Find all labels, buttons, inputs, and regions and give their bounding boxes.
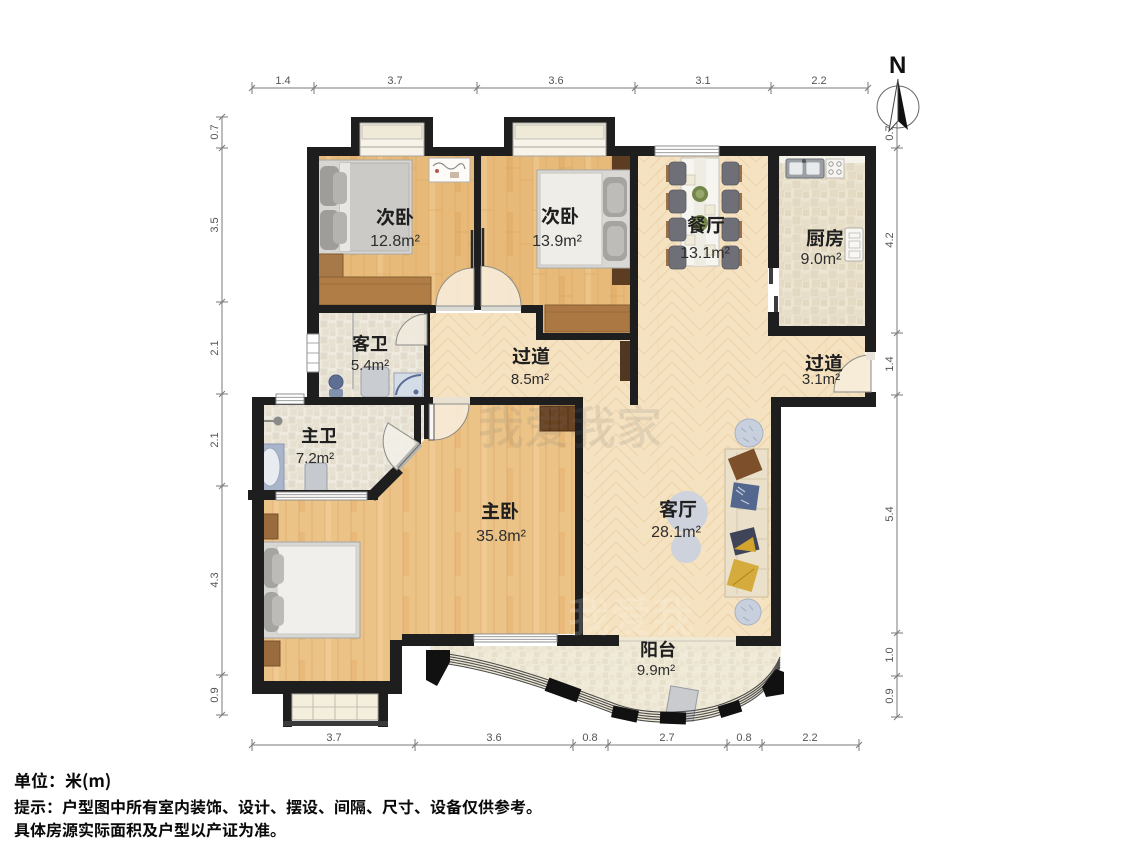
- svg-text:3.5: 3.5: [209, 217, 221, 232]
- svg-text:2.2: 2.2: [802, 732, 817, 744]
- svg-text:2.7: 2.7: [659, 732, 674, 744]
- svg-text:3.7: 3.7: [387, 75, 402, 87]
- svg-text:N: N: [889, 52, 906, 79]
- svg-text:13.1m²: 13.1m²: [680, 245, 730, 262]
- svg-text:3.6: 3.6: [486, 732, 501, 744]
- svg-text:28.1m²: 28.1m²: [651, 524, 701, 541]
- svg-text:2.1: 2.1: [209, 432, 221, 447]
- svg-text:12.8m²: 12.8m²: [370, 233, 420, 250]
- svg-text:8.5m²: 8.5m²: [511, 371, 549, 388]
- svg-text:9.9m²: 9.9m²: [637, 662, 675, 679]
- svg-text:3.1m²: 3.1m²: [802, 371, 840, 388]
- svg-text:3.7: 3.7: [326, 732, 341, 744]
- svg-text:1.4: 1.4: [884, 356, 896, 371]
- svg-text:1.4: 1.4: [275, 75, 290, 87]
- svg-text:0.7: 0.7: [209, 124, 221, 139]
- svg-text:5.4: 5.4: [884, 506, 896, 521]
- svg-text:9.0m²: 9.0m²: [801, 251, 843, 268]
- svg-text:3.1: 3.1: [695, 75, 710, 87]
- svg-text:0.8: 0.8: [582, 732, 597, 744]
- svg-text:0.9: 0.9: [884, 688, 896, 703]
- svg-text:7.2m²: 7.2m²: [296, 450, 334, 467]
- svg-text:1.0: 1.0: [884, 647, 896, 662]
- svg-text:0.9: 0.9: [209, 687, 221, 702]
- svg-text:0.8: 0.8: [736, 732, 751, 744]
- svg-text:5.4m²: 5.4m²: [351, 357, 389, 374]
- svg-text:2.2: 2.2: [811, 75, 826, 87]
- svg-text:4.3: 4.3: [209, 572, 221, 587]
- svg-text:13.9m²: 13.9m²: [532, 233, 582, 250]
- svg-text:4.2: 4.2: [884, 232, 896, 247]
- svg-text:2.1: 2.1: [209, 340, 221, 355]
- svg-text:3.6: 3.6: [548, 75, 563, 87]
- svg-text:35.8m²: 35.8m²: [476, 528, 526, 545]
